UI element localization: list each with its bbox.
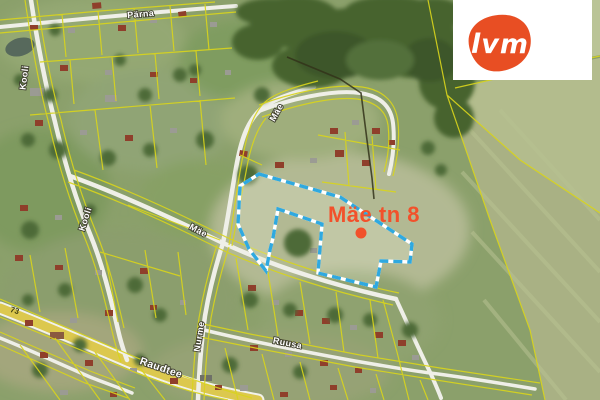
location-marker [356,228,367,239]
map-canvas: Pärna Kooli Kooli Mäe Mäe Nurme Ruusa Ra… [0,0,600,400]
logo-text: lvm [471,29,529,60]
satellite-map-view: Pärna Kooli Kooli Mäe Mäe Nurme Ruusa Ra… [0,0,600,400]
lvm-logo: lvm [453,0,592,80]
address-label: Mäe tn 8 [328,202,420,227]
